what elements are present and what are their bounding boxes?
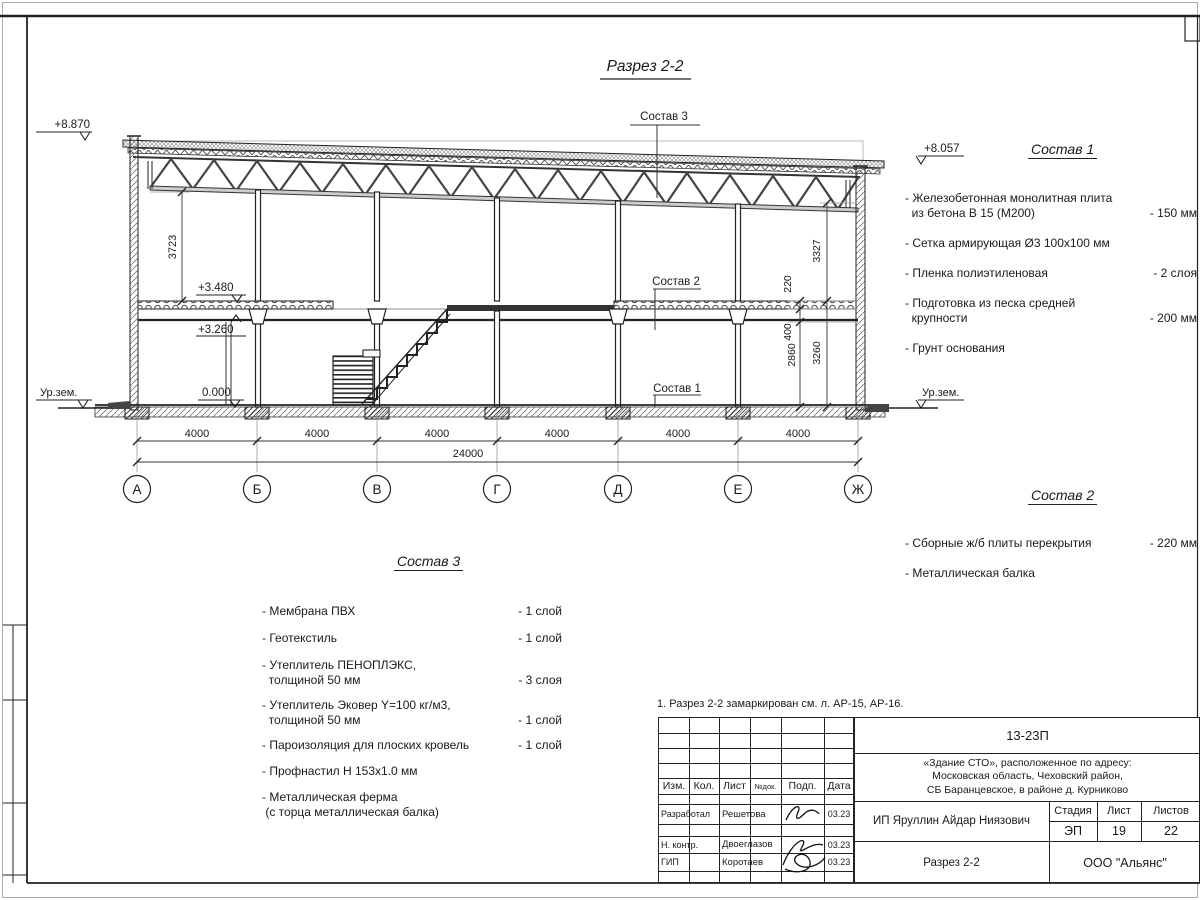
callout-sostav1: Состав 1 [653,383,701,407]
row-role: Н. контр. [661,836,718,853]
material-item: - Утеплитель Эковер Y=100 кг/м3, толщино… [262,698,562,728]
elevation-ground-left: Ур.зем. [36,387,92,408]
material-item: - Утеплитель ПЕНОПЛЭКС, толщиной 50 мм -… [262,658,562,688]
col-kol: Кол. [689,778,719,794]
material-item: - Металлическая ферма (с торца металличе… [262,790,562,820]
row-role: Разработал [661,804,718,824]
stair [333,309,450,407]
blind-area-left [108,401,130,409]
svg-text:+3.260: +3.260 [198,324,234,336]
material-item: - Железобетонная монолитная плита из бет… [905,191,1197,221]
sheets-total: 22 [1141,821,1200,841]
col-list: Лист [719,778,750,794]
axis-label: Ж [852,482,865,497]
drawing-sheet: Разрез 2-2 [0,0,1200,900]
middle-beam [447,305,614,311]
col-podp: Подп. [781,778,824,794]
row-date: 03.23 [824,804,854,824]
columns [226,190,741,407]
sostav1-list: - Железобетонная монолитная плита из бет… [905,191,1197,371]
dim-right-height: 3327 [811,239,823,263]
material-item: - Металлическая балка [905,566,1197,581]
stage-value: ЭП [1049,821,1097,841]
row-name: Двоеглазов [722,836,780,853]
material-item: - Подготовка из песка средней крупности … [905,296,1197,326]
row-name: Коротаев [722,853,780,871]
span-dim: 4000 [666,428,690,440]
bottom-dimensions: 4000 4000 4000 4000 4000 4000 24000 [133,415,862,472]
sheet-number: 19 [1097,821,1141,841]
material-item: - Сетка армирующая Ø3 100х100 мм [905,236,1197,251]
section-title-text: Разрез 2-2 [607,58,684,75]
material-item: - Сборные ж/б плиты перекрытия - 220 мм [905,536,1197,551]
svg-text:+8.057: +8.057 [924,143,960,155]
material-item: - Грунт основания [905,341,1197,356]
dim-clear: 2860 [786,343,798,367]
sostav2-list: - Сборные ж/б плиты перекрытия - 220 мм … [905,536,1197,596]
blind-area-right [865,404,889,412]
material-item: - Пароизоляция для плоских кровель - 1 с… [262,738,562,753]
sheet-label: Лист [1097,801,1141,821]
material-item: - Профнастил Н 153х1.0 мм [262,764,562,779]
roof [123,140,884,174]
project-object: «Здание СТО», расположенное по адресу: М… [854,754,1200,800]
span-dim: 4000 [305,428,329,440]
row-name: Решетова [722,804,780,824]
svg-text:+3.480: +3.480 [198,282,234,294]
row-role: ГИП [661,853,718,871]
svg-text:Состав 3: Состав 3 [640,111,688,123]
svg-text:+8.870: +8.870 [55,119,91,131]
elevation-roof-left: +8.870 [36,119,92,140]
svg-text:Ур.зем.: Ур.зем. [40,387,77,399]
client-name: ИП Яруллин Айдар Ниязович [854,801,1049,841]
elevation-floor: 0.000 [198,387,244,407]
col-data: Дата [824,778,854,794]
total-dim: 24000 [453,448,484,460]
material-item: - Геотекстиль - 1 слой [262,631,562,646]
svg-text:Состав 1: Состав 1 [653,383,701,395]
axis-label: Г [493,482,501,497]
axis-label: Д [613,482,622,497]
signature [777,831,831,877]
elevation-slab: +3.480 [196,282,246,302]
axis-label: В [372,482,381,497]
axis-label: Е [733,482,742,497]
left-wall [130,136,138,410]
material-item: - Мембрана ПВХ - 1 слой [262,604,562,619]
dim-storey: 3260 [811,341,823,365]
sostav3-list: - Мембрана ПВХ - 1 слой - Геотекстиль - … [262,604,562,835]
sostav3-heading: Состав 3 [394,553,463,571]
signature [783,803,823,824]
frame-side-stamp [3,625,27,883]
col-izm: Изм. [659,778,689,794]
span-dim: 4000 [786,428,810,440]
company-name: ООО "Альянс" [1049,841,1200,884]
dim-left-height: 3723 [167,235,179,259]
elevation-roof-right: +8.057 [916,143,964,164]
title-block: Изм. Кол. Лист №док. Подп. Дата Разработ… [658,717,1200,883]
drawing-note: 1. Разрез 2-2 замаркирован см. л. АР-15,… [657,698,903,710]
axis-bubbles: А Б В Г Д Е Ж [124,476,872,503]
sostav2-heading: Состав 2 [1028,487,1097,505]
sheets-label: Листов [1141,801,1200,821]
axis-label: А [132,482,141,497]
dim-beam: 400 [782,323,794,341]
svg-text:Ур.зем.: Ур.зем. [922,387,959,399]
span-dim: 4000 [425,428,449,440]
project-code: 13-23П [854,718,1200,753]
span-dim: 4000 [545,428,569,440]
svg-text:0.000: 0.000 [202,387,231,399]
col-ndok: №док. [750,778,781,794]
span-dim: 4000 [185,428,209,440]
section-title: Разрез 2-2 [600,58,691,79]
sostav1-heading: Состав 1 [1028,141,1097,159]
elevation-beam: +3.260 [196,315,246,336]
material-item: - Пленка полиэтиленовая - 2 слоя [905,266,1197,281]
sheet-title: Разрез 2-2 [854,841,1049,884]
dim-slab: 220 [782,275,794,293]
svg-text:Состав 2: Состав 2 [652,276,700,288]
stage-label: Стадия [1049,801,1097,821]
axis-label: Б [253,482,262,497]
elevation-ground-right: Ур.зем. [916,387,964,408]
right-wall [856,166,865,410]
